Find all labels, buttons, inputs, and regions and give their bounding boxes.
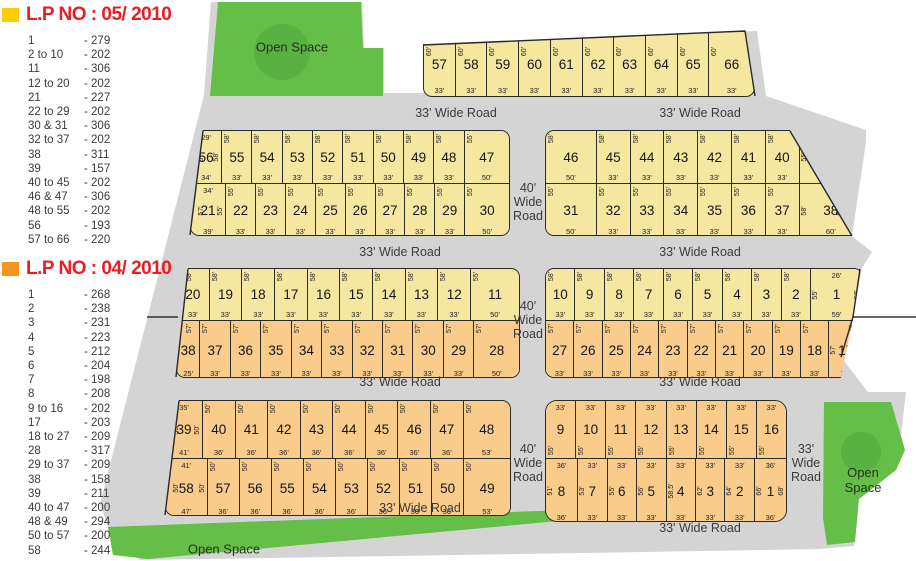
plot-57[interactable]: 50'5736': [207, 459, 239, 516]
legend-entry: 57 to 66- 220: [28, 233, 171, 247]
plot-top-dim: 34': [191, 186, 225, 195]
plot-depth-dim: 58': [315, 134, 322, 143]
plot-59[interactable]: 60'5933': [486, 32, 518, 96]
legend-entry: 48 to 55- 202: [28, 204, 171, 218]
plot-number: 18: [251, 287, 266, 302]
plot-depth-dim: 50': [335, 404, 342, 413]
plot-number: 34: [299, 343, 314, 358]
plot-bottom-dim: 33': [210, 310, 242, 319]
plot-number: 10: [583, 422, 598, 437]
plot-15[interactable]: 33'1555': [726, 401, 756, 458]
plot-45[interactable]: 58'4533': [596, 131, 630, 183]
plot-number: 25: [323, 203, 338, 218]
plot-32[interactable]: 57'3233': [352, 321, 382, 378]
plot-number: 19: [779, 343, 794, 358]
plot-35[interactable]: 55'3533': [697, 184, 731, 236]
legend-entry: 11- 306: [28, 62, 171, 76]
plot-number: 20: [750, 343, 765, 358]
plot-depth-dim: 58': [406, 134, 413, 143]
plot-bottom-dim: 33': [614, 86, 645, 95]
plot-25[interactable]: 55'2533': [315, 184, 345, 236]
plot-number: 60: [527, 57, 542, 72]
plot-number: 3: [763, 287, 771, 302]
plot-9[interactable]: 58'933': [574, 269, 603, 320]
plot-depth-dim: 50': [433, 404, 440, 413]
plot-54[interactable]: 58'5433': [251, 131, 281, 183]
plot-top-dim: 33': [606, 403, 635, 412]
road-label: 33' Wide Road: [659, 521, 741, 535]
plot-62[interactable]: 60'6233': [582, 32, 614, 96]
plot-50[interactable]: 58'5033': [373, 131, 403, 183]
plot-51[interactable]: 58'5133': [342, 131, 372, 183]
plot-number: 12: [643, 422, 658, 437]
plot-depth-dim: 57': [718, 324, 725, 333]
block-mid-east: 58'1033'58'933'58'833'58'733'58'633'58'5…: [545, 268, 863, 378]
legend-entry: 32 to 37- 202: [28, 133, 171, 147]
plot-46[interactable]: 50'4636': [397, 401, 430, 458]
plot-number: 16: [316, 287, 331, 302]
plot-bottom-dim: 33': [698, 227, 731, 236]
plot-16[interactable]: 58'1633': [307, 269, 340, 320]
plot-4[interactable]: 33'458.5'33': [666, 459, 695, 522]
plot-bottom-dim: 36': [431, 448, 463, 457]
legend-entry: 1- 268: [28, 288, 171, 302]
plot-depth-dim: 55': [734, 187, 741, 196]
legend-entry: 21- 227: [28, 91, 171, 105]
plot-12[interactable]: 58'1233': [437, 269, 470, 320]
plot-21[interactable]: 34'2157'55'39': [191, 184, 225, 236]
plot-depth-dim: 58': [436, 134, 443, 143]
plot-depth-dim: 60': [553, 47, 560, 56]
plot-bottom-dim: 33': [597, 173, 630, 182]
plot-depth-dim: 57': [385, 324, 392, 333]
plot-60[interactable]: 60'6033': [518, 32, 550, 96]
plot-depth-dim: 50': [338, 462, 345, 471]
plot-depth-dim: 55': [699, 446, 706, 455]
plot-47[interactable]: 55'4750': [464, 131, 509, 183]
plot-bottom-dim: 50': [474, 369, 519, 378]
plot-number: 64: [654, 57, 669, 72]
plot-bottom-dim: 33': [723, 310, 751, 319]
plot-40[interactable]: 58'4033': [765, 131, 799, 183]
plot-number: 14: [381, 287, 396, 302]
plot-number: 30: [480, 203, 495, 218]
plot-depth-dim: 58': [734, 134, 741, 143]
plot-18[interactable]: 57'1833': [800, 321, 828, 378]
plot-depth-dim: 58': [212, 272, 219, 281]
plot-number: 15: [349, 287, 364, 302]
legend-entries: 1- 2682- 2383- 2314- 2235- 2126- 2047- 1…: [28, 288, 171, 558]
plot-depth-dim: 58': [784, 272, 791, 281]
plot-bottom-dim: 33': [456, 86, 487, 95]
plot-28[interactable]: 55'2833': [404, 184, 434, 236]
plot-40[interactable]: 50'4036': [202, 401, 235, 458]
plot-bottom-dim: 33': [664, 173, 697, 182]
plot-8[interactable]: 58'833': [604, 269, 633, 320]
plot-bottom-dim: 39': [191, 227, 225, 236]
plot-number: 38: [181, 343, 196, 358]
plot-depth-dim: 57': [633, 324, 640, 333]
plot-depth-dim: 57': [661, 324, 668, 333]
plot-9[interactable]: 33'955': [546, 401, 575, 458]
plot-36[interactable]: 57'3633': [230, 321, 260, 378]
plot-33[interactable]: 55'3333': [630, 184, 664, 236]
plot-number: 2: [736, 484, 744, 499]
plot-27[interactable]: 55'2733': [375, 184, 405, 236]
plot-top-dim: 33': [667, 461, 695, 470]
plot-bottom-dim: 33': [664, 310, 692, 319]
plot-bottom-dim: 33': [292, 369, 321, 378]
legend-entry: 1- 279: [28, 34, 171, 48]
plot-depth-dim: 55': [669, 446, 676, 455]
plot-3[interactable]: 33'362'33': [695, 459, 724, 522]
plot-depth-dim: 58': [599, 134, 606, 143]
plot-bottom-dim: 33': [434, 173, 463, 182]
plot-11[interactable]: 55'1150': [470, 269, 519, 320]
plot-bottom-dim: 33': [605, 310, 633, 319]
legend-lp05: L.P NO : 05/ 2010 1- 2792 to 10- 20211- …: [2, 4, 171, 247]
plot-43[interactable]: 50'4336': [300, 401, 333, 458]
plot-number: 33: [329, 343, 344, 358]
plot-number: 62: [590, 57, 605, 72]
plot-left-dim: 62': [697, 486, 704, 495]
plot-bottom-dim: 36': [755, 513, 786, 522]
plot-5[interactable]: 58'533': [692, 269, 721, 320]
plot-depth-dim: 58': [375, 272, 382, 281]
plot-bottom-dim: 33': [546, 369, 573, 378]
plot-number: 63: [622, 57, 637, 72]
plot-number: 46: [563, 150, 578, 165]
plot-bottom-dim: 36': [208, 507, 239, 516]
plot-26[interactable]: 55'2633': [345, 184, 375, 236]
plot-depth-dim: 58': [408, 272, 415, 281]
plot-41[interactable]: 50'4136': [235, 401, 268, 458]
plot-number: 13: [674, 422, 689, 437]
plot-6[interactable]: 58'633': [663, 269, 692, 320]
plot-depth-dim: 57': [746, 324, 753, 333]
plot-2[interactable]: 58'233': [781, 269, 810, 320]
plot-42[interactable]: 50'4236': [267, 401, 300, 458]
legend-entry: 29 to 37- 209: [28, 458, 171, 472]
plot-depth-dim: 55': [548, 446, 555, 455]
plot-bottom-dim: 33': [435, 227, 464, 236]
plot-number: 36: [741, 203, 756, 218]
plot-14[interactable]: 58'1433': [372, 269, 405, 320]
plot-34[interactable]: 57'3433': [291, 321, 321, 378]
plot-depth-dim: 58': [345, 134, 352, 143]
plot-bottom-dim: 33': [200, 369, 229, 378]
plot-37[interactable]: 57'3733': [199, 321, 229, 378]
road-label: 33' Wide Road: [379, 501, 461, 515]
plot-right-dim: 50': [199, 483, 206, 492]
legend-entry: 22 to 29- 202: [28, 105, 171, 119]
plot-depth-dim: 58': [754, 272, 761, 281]
plot-7[interactable]: 58'733': [633, 269, 662, 320]
plot-number: 31: [563, 203, 578, 218]
plot-bottom-dim: 50': [546, 173, 596, 182]
plot-20[interactable]: 57'2033': [743, 321, 771, 378]
plot-55[interactable]: 50'5536': [271, 459, 303, 516]
plot-number: 59: [495, 57, 510, 72]
plot-30[interactable]: 57'3033': [412, 321, 442, 378]
plot-depth-dim: 50': [303, 404, 310, 413]
plot-53[interactable]: 50'5336': [335, 459, 367, 516]
plot-bottom-dim: 33': [678, 86, 709, 95]
plot-depth-dim: 55': [638, 446, 645, 455]
open-space-label: Open Space: [188, 542, 260, 557]
plot-65[interactable]: 60'6533': [677, 32, 709, 96]
plot-36[interactable]: 55'3633': [731, 184, 765, 236]
plot-bottom-dim: 47': [166, 507, 207, 516]
plot-26[interactable]: 57'2633': [573, 321, 601, 378]
plot-number: 57: [432, 57, 447, 72]
plot-37[interactable]: 55'3733': [765, 184, 799, 236]
plot-depth-dim: 55': [258, 187, 265, 196]
plot-19[interactable]: 57'1933': [772, 321, 800, 378]
plot-depth-dim: 57': [355, 324, 362, 333]
plot-32[interactable]: 55'3233': [596, 184, 630, 236]
plot-23[interactable]: 57'2333': [658, 321, 686, 378]
plot-27[interactable]: 57'2733': [546, 321, 573, 378]
plot-7[interactable]: 33'753'33': [577, 459, 606, 522]
plot-11[interactable]: 33'1155': [605, 401, 635, 458]
plot-bottom-dim: 33': [744, 369, 771, 378]
plot-12[interactable]: 33'1255': [635, 401, 665, 458]
plot-46[interactable]: 58'4650': [546, 131, 596, 183]
plot-number: 43: [309, 422, 324, 437]
legend-entry: 46 & 47- 306: [28, 190, 171, 204]
plot-bottom-dim: 33': [646, 86, 677, 95]
plot-depth-dim: 57': [415, 324, 422, 333]
plot-bottom-dim: 33': [664, 227, 697, 236]
plot-number: 28: [412, 203, 427, 218]
legend-entry: 50 to 57- 200: [28, 529, 171, 543]
plot-63[interactable]: 60'6333': [613, 32, 645, 96]
plot-49[interactable]: 50'4953': [463, 459, 510, 516]
plot-number: 57: [216, 481, 231, 496]
road-label-vertical: 40' Wide Road: [513, 442, 543, 484]
legend-entry: 2 to 10- 202: [28, 48, 171, 62]
plot-depth-dim: 58': [768, 134, 775, 143]
plot-depth-dim: 57': [294, 324, 301, 333]
plot-left-dim: 55': [812, 290, 819, 299]
plot-depth-dim: 60': [585, 47, 592, 56]
plot-48[interactable]: 50'4853': [463, 401, 510, 458]
plot-31[interactable]: 55'3150': [546, 184, 596, 236]
plot-49[interactable]: 58'4933': [403, 131, 433, 183]
plot-depth-dim: 50': [210, 462, 217, 471]
plot-2[interactable]: 33'264'33': [724, 459, 753, 522]
plot-depth-dim: 60': [458, 47, 465, 56]
plot-52[interactable]: 58'5233': [312, 131, 342, 183]
plot-43[interactable]: 58'4333': [663, 131, 697, 183]
plot-55[interactable]: 58'5533': [221, 131, 251, 183]
plot-number: 21: [722, 343, 737, 358]
plot-bottom-dim: 33': [608, 513, 636, 522]
plot-depth-dim: 55': [407, 187, 414, 196]
open-space-label: Open Space: [256, 40, 328, 55]
plot-depth-dim: 55': [467, 134, 474, 143]
plot-depth-dim: 55': [759, 446, 766, 455]
plot-33[interactable]: 57'3333': [321, 321, 351, 378]
plot-bottom-dim: 33': [631, 227, 664, 236]
plot-25[interactable]: 57'2533': [602, 321, 630, 378]
plot-15[interactable]: 58'1533': [339, 269, 372, 320]
plot-22[interactable]: 57'2233': [687, 321, 715, 378]
plot-number: 22: [694, 343, 709, 358]
plot-53[interactable]: 58'5333': [282, 131, 312, 183]
plot-8[interactable]: 36'851'36': [546, 459, 577, 522]
plot-22[interactable]: 55'2233': [225, 184, 255, 236]
plot-bottom-dim: 33': [252, 173, 281, 182]
plot-47[interactable]: 50'4736': [430, 401, 463, 458]
plot-bottom-dim: 33': [752, 310, 780, 319]
plot-10[interactable]: 33'1055': [575, 401, 605, 458]
plot-left-dim: 50': [173, 483, 180, 492]
plot-bottom-dim: 50': [471, 310, 519, 319]
plot-number: 15: [734, 422, 749, 437]
plot-number: 32: [606, 203, 621, 218]
plot-number: 18: [807, 343, 822, 358]
plot-48[interactable]: 58'4833': [433, 131, 463, 183]
plot-64[interactable]: 60'6433': [645, 32, 677, 96]
legend-lp04: L.P NO : 04/ 2010 1- 2682- 2383- 2314- 2…: [2, 258, 171, 558]
plot-depth-dim: 58': [700, 134, 707, 143]
plot-bottom-dim: 36': [333, 448, 365, 457]
plot-depth-dim: 58': [666, 134, 673, 143]
plot-4[interactable]: 58'433': [722, 269, 751, 320]
plot-top-dim: 33': [576, 403, 605, 412]
plot-depth-dim: 55': [700, 187, 707, 196]
plot-29[interactable]: 57'2933': [443, 321, 473, 378]
plot-41[interactable]: 58'4133': [731, 131, 765, 183]
plot-bottom-dim: 33': [231, 369, 260, 378]
plot-bottom-dim: 33': [261, 369, 290, 378]
road-label: 33' Wide Road: [359, 245, 441, 259]
plot-5[interactable]: 33'556'33': [636, 459, 665, 522]
legend-title: L.P NO : 05/ 2010: [26, 4, 171, 26]
plot-depth-dim: 57': [605, 324, 612, 333]
plot-bottom-dim: 33': [766, 173, 799, 182]
plot-depth-dim: 58': [725, 272, 732, 281]
legend-entry: 6- 204: [28, 359, 171, 373]
plot-14[interactable]: 33'1455': [696, 401, 726, 458]
plot-3[interactable]: 58'333': [751, 269, 780, 320]
plot-54[interactable]: 50'5436': [303, 459, 335, 516]
plot-number: 46: [407, 422, 422, 437]
plot-bottom-dim: 33': [551, 86, 582, 95]
plot-17[interactable]: 58'1733': [274, 269, 307, 320]
plot-depth-dim: 60': [426, 47, 433, 56]
plot-bottom-dim: 50': [465, 173, 509, 182]
plot-21[interactable]: 57'2133': [715, 321, 743, 378]
legend-entry: 28- 317: [28, 444, 171, 458]
plot-bottom-dim: 36': [240, 507, 271, 516]
legend-entry: 40 to 47- 200: [28, 501, 171, 515]
plot-19[interactable]: 58'1933': [209, 269, 242, 320]
plot-depth-dim: 58': [695, 272, 702, 281]
plot-number: 2: [792, 287, 800, 302]
plot-number: 23: [263, 203, 278, 218]
plot-left-dim: 51': [547, 486, 554, 495]
plot-42[interactable]: 58'4233': [697, 131, 731, 183]
plot-depth-dim: 57': [324, 324, 331, 333]
plot-depth-dim: 57': [186, 324, 193, 333]
plot-top-dim: 33': [667, 403, 696, 412]
plot-depth-dim: 58': [577, 272, 584, 281]
road-label: 33' Wide Road: [659, 106, 741, 120]
plot-top-dim: 33': [757, 403, 786, 412]
plot-1[interactable]: 36'166'68'36': [754, 459, 786, 522]
plot-bottom-dim: 33': [698, 173, 731, 182]
plot-number: 6: [618, 484, 626, 499]
plot-44[interactable]: 50'4436': [332, 401, 365, 458]
plot-34[interactable]: 55'3433': [663, 184, 697, 236]
plot-number: 47: [479, 150, 494, 165]
plot-number: 48: [441, 150, 456, 165]
plot-number: 32: [360, 343, 375, 358]
plot-24[interactable]: 57'2433': [630, 321, 658, 378]
plot-number: 24: [293, 203, 308, 218]
plot-45[interactable]: 50'4536': [365, 401, 398, 458]
plot-number: 40: [775, 150, 790, 165]
plot-23[interactable]: 55'2333': [255, 184, 285, 236]
plot-bottom-dim: 33': [693, 310, 721, 319]
plot-bottom-dim: 33': [444, 369, 473, 378]
plot-10[interactable]: 58'1033': [546, 269, 574, 320]
plot-bottom-dim: 25': [177, 369, 199, 378]
legend-entry: 2- 238: [28, 302, 171, 316]
plot-bottom-dim: 33': [782, 310, 810, 319]
layout-plan: 60'5733'60'5833'60'5933'60'6033'60'6133'…: [0, 0, 916, 561]
plot-18[interactable]: 58'1833': [241, 269, 274, 320]
plot-depth-dim: 60': [521, 47, 528, 56]
plot-left-dim: 57': [830, 345, 837, 354]
plot-31[interactable]: 57'3133': [382, 321, 412, 378]
legend-entry: 17- 203: [28, 416, 171, 430]
plot-29[interactable]: 55'2933': [434, 184, 464, 236]
plot-depth-dim: 58': [666, 272, 673, 281]
plot-depth-dim: 50': [466, 462, 473, 471]
plot-depth-dim: 55': [768, 187, 775, 196]
plot-6[interactable]: 33'655'33': [607, 459, 636, 522]
plot-13[interactable]: 58'1333': [405, 269, 438, 320]
plot-bottom-dim: 33': [283, 173, 312, 182]
plot-number: 13: [414, 287, 429, 302]
plot-depth-dim: 57': [263, 324, 270, 333]
plot-bottom-dim: 33': [316, 227, 345, 236]
plot-number: 51: [408, 481, 423, 496]
plot-bottom-dim: 33': [801, 369, 828, 378]
plot-number: 11: [488, 287, 502, 302]
plot-depth-dim: 58': [440, 272, 447, 281]
plot-58[interactable]: 41'5850'50'47': [166, 459, 207, 516]
plot-61[interactable]: 60'6133': [550, 32, 582, 96]
plot-number: 48: [479, 422, 494, 437]
plot-bottom-dim: 36': [336, 507, 367, 516]
plot-44[interactable]: 58'4433': [630, 131, 664, 183]
plot-24[interactable]: 55'2433': [285, 184, 315, 236]
plot-top-dim: 33': [697, 403, 726, 412]
plot-56[interactable]: 50'5636': [239, 459, 271, 516]
plot-16[interactable]: 33'1655': [756, 401, 786, 458]
plot-30[interactable]: 55'3050': [464, 184, 509, 236]
legend-entry: 39- 157: [28, 162, 171, 176]
plot-35[interactable]: 57'3533': [260, 321, 290, 378]
plot-13[interactable]: 33'1355': [666, 401, 696, 458]
plot-depth-dim: 50': [400, 404, 407, 413]
plot-bottom-dim: 33': [242, 310, 274, 319]
